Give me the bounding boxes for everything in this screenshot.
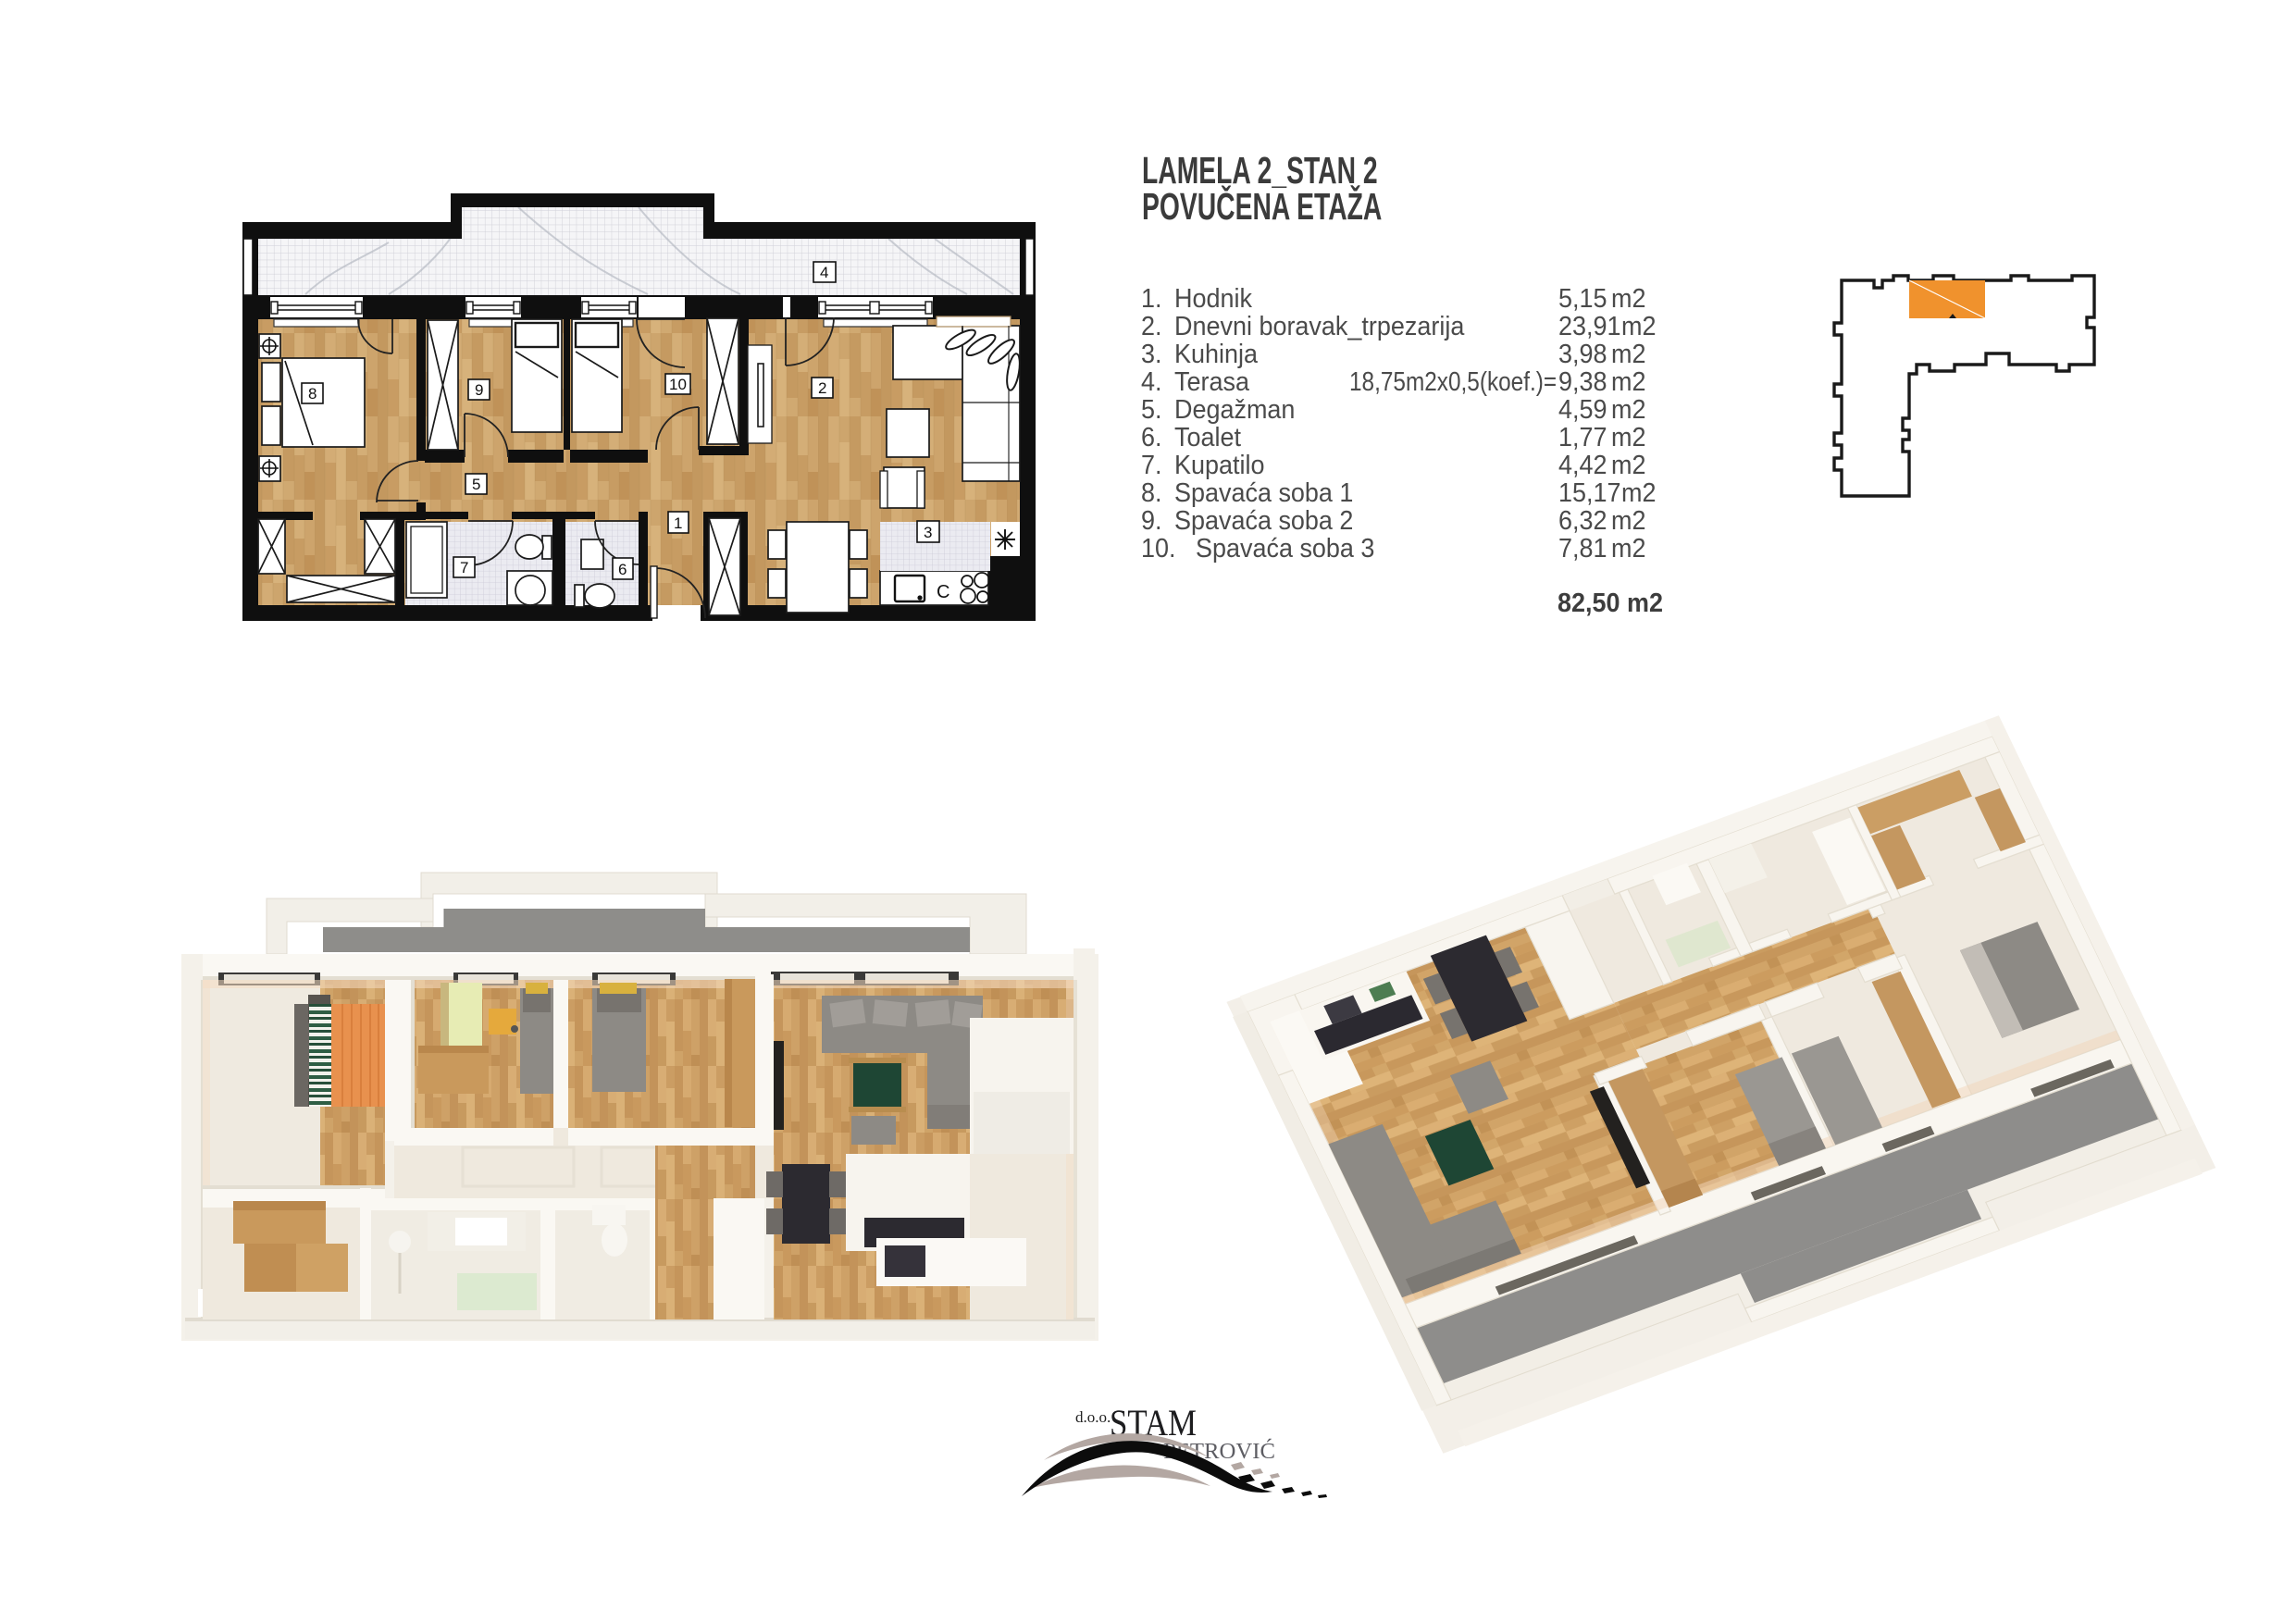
svg-text:d.o.o.: d.o.o. <box>1075 1408 1111 1426</box>
